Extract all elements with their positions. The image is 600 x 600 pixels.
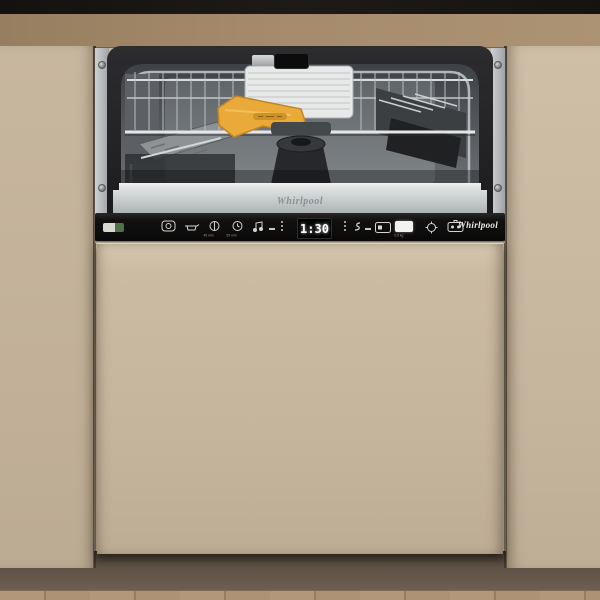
half-load-icon xyxy=(207,220,223,233)
dishwasher-door-front xyxy=(97,243,503,554)
wood-floor xyxy=(0,590,600,600)
basket-handle xyxy=(271,122,331,135)
inner-door-steel-strip: Whirlpool xyxy=(113,190,487,213)
badge-left xyxy=(103,223,115,232)
time-display: 1:30 xyxy=(297,218,332,239)
start-button xyxy=(395,221,413,232)
inner-door-logo: Whirlpool xyxy=(277,196,323,207)
door-latch xyxy=(274,53,309,69)
micro-label: 45 min xyxy=(203,234,213,238)
inner-door-edge xyxy=(119,183,481,190)
screw-icon xyxy=(98,184,106,192)
time-display-value: 1:30 xyxy=(300,222,329,236)
control-panel: 45 min 59 min 1:30 0,5 kg Whirlpool xyxy=(95,213,505,241)
option-icon xyxy=(252,220,266,233)
micro-label: 0,5 kg xyxy=(394,234,403,238)
door-latch-plate xyxy=(252,55,274,66)
screw-icon xyxy=(494,61,502,69)
power-icon xyxy=(161,220,177,233)
mounting-strip-right xyxy=(491,48,505,215)
indicator-dots xyxy=(344,221,346,231)
program-icon xyxy=(184,220,200,233)
salt-indicator-icon xyxy=(352,221,362,233)
cabinet-right-panel xyxy=(506,46,600,568)
delay-icon xyxy=(230,220,246,233)
dash-mark xyxy=(269,228,275,230)
indicator-dots xyxy=(281,221,283,231)
panel-brand-logo: Whirlpool xyxy=(458,220,498,230)
energy-badge xyxy=(103,223,124,232)
badge-right xyxy=(115,223,124,232)
cabinet-left-panel xyxy=(0,46,94,568)
screw-icon xyxy=(98,61,106,69)
spray-tower-knob xyxy=(291,138,311,146)
interior-bottom-shade xyxy=(121,170,479,184)
product-photo-dishwasher: Whirlpool 45 min 59 min 1:30 0,5 k xyxy=(0,0,600,600)
softener-icon xyxy=(425,221,438,234)
screw-icon xyxy=(494,184,502,192)
dash-mark xyxy=(365,228,371,230)
dishwasher-interior xyxy=(121,58,479,184)
wall-band xyxy=(0,14,600,48)
dispenser-icon xyxy=(375,222,392,234)
micro-label: 59 min xyxy=(226,234,236,238)
top-dark-band xyxy=(0,0,600,14)
